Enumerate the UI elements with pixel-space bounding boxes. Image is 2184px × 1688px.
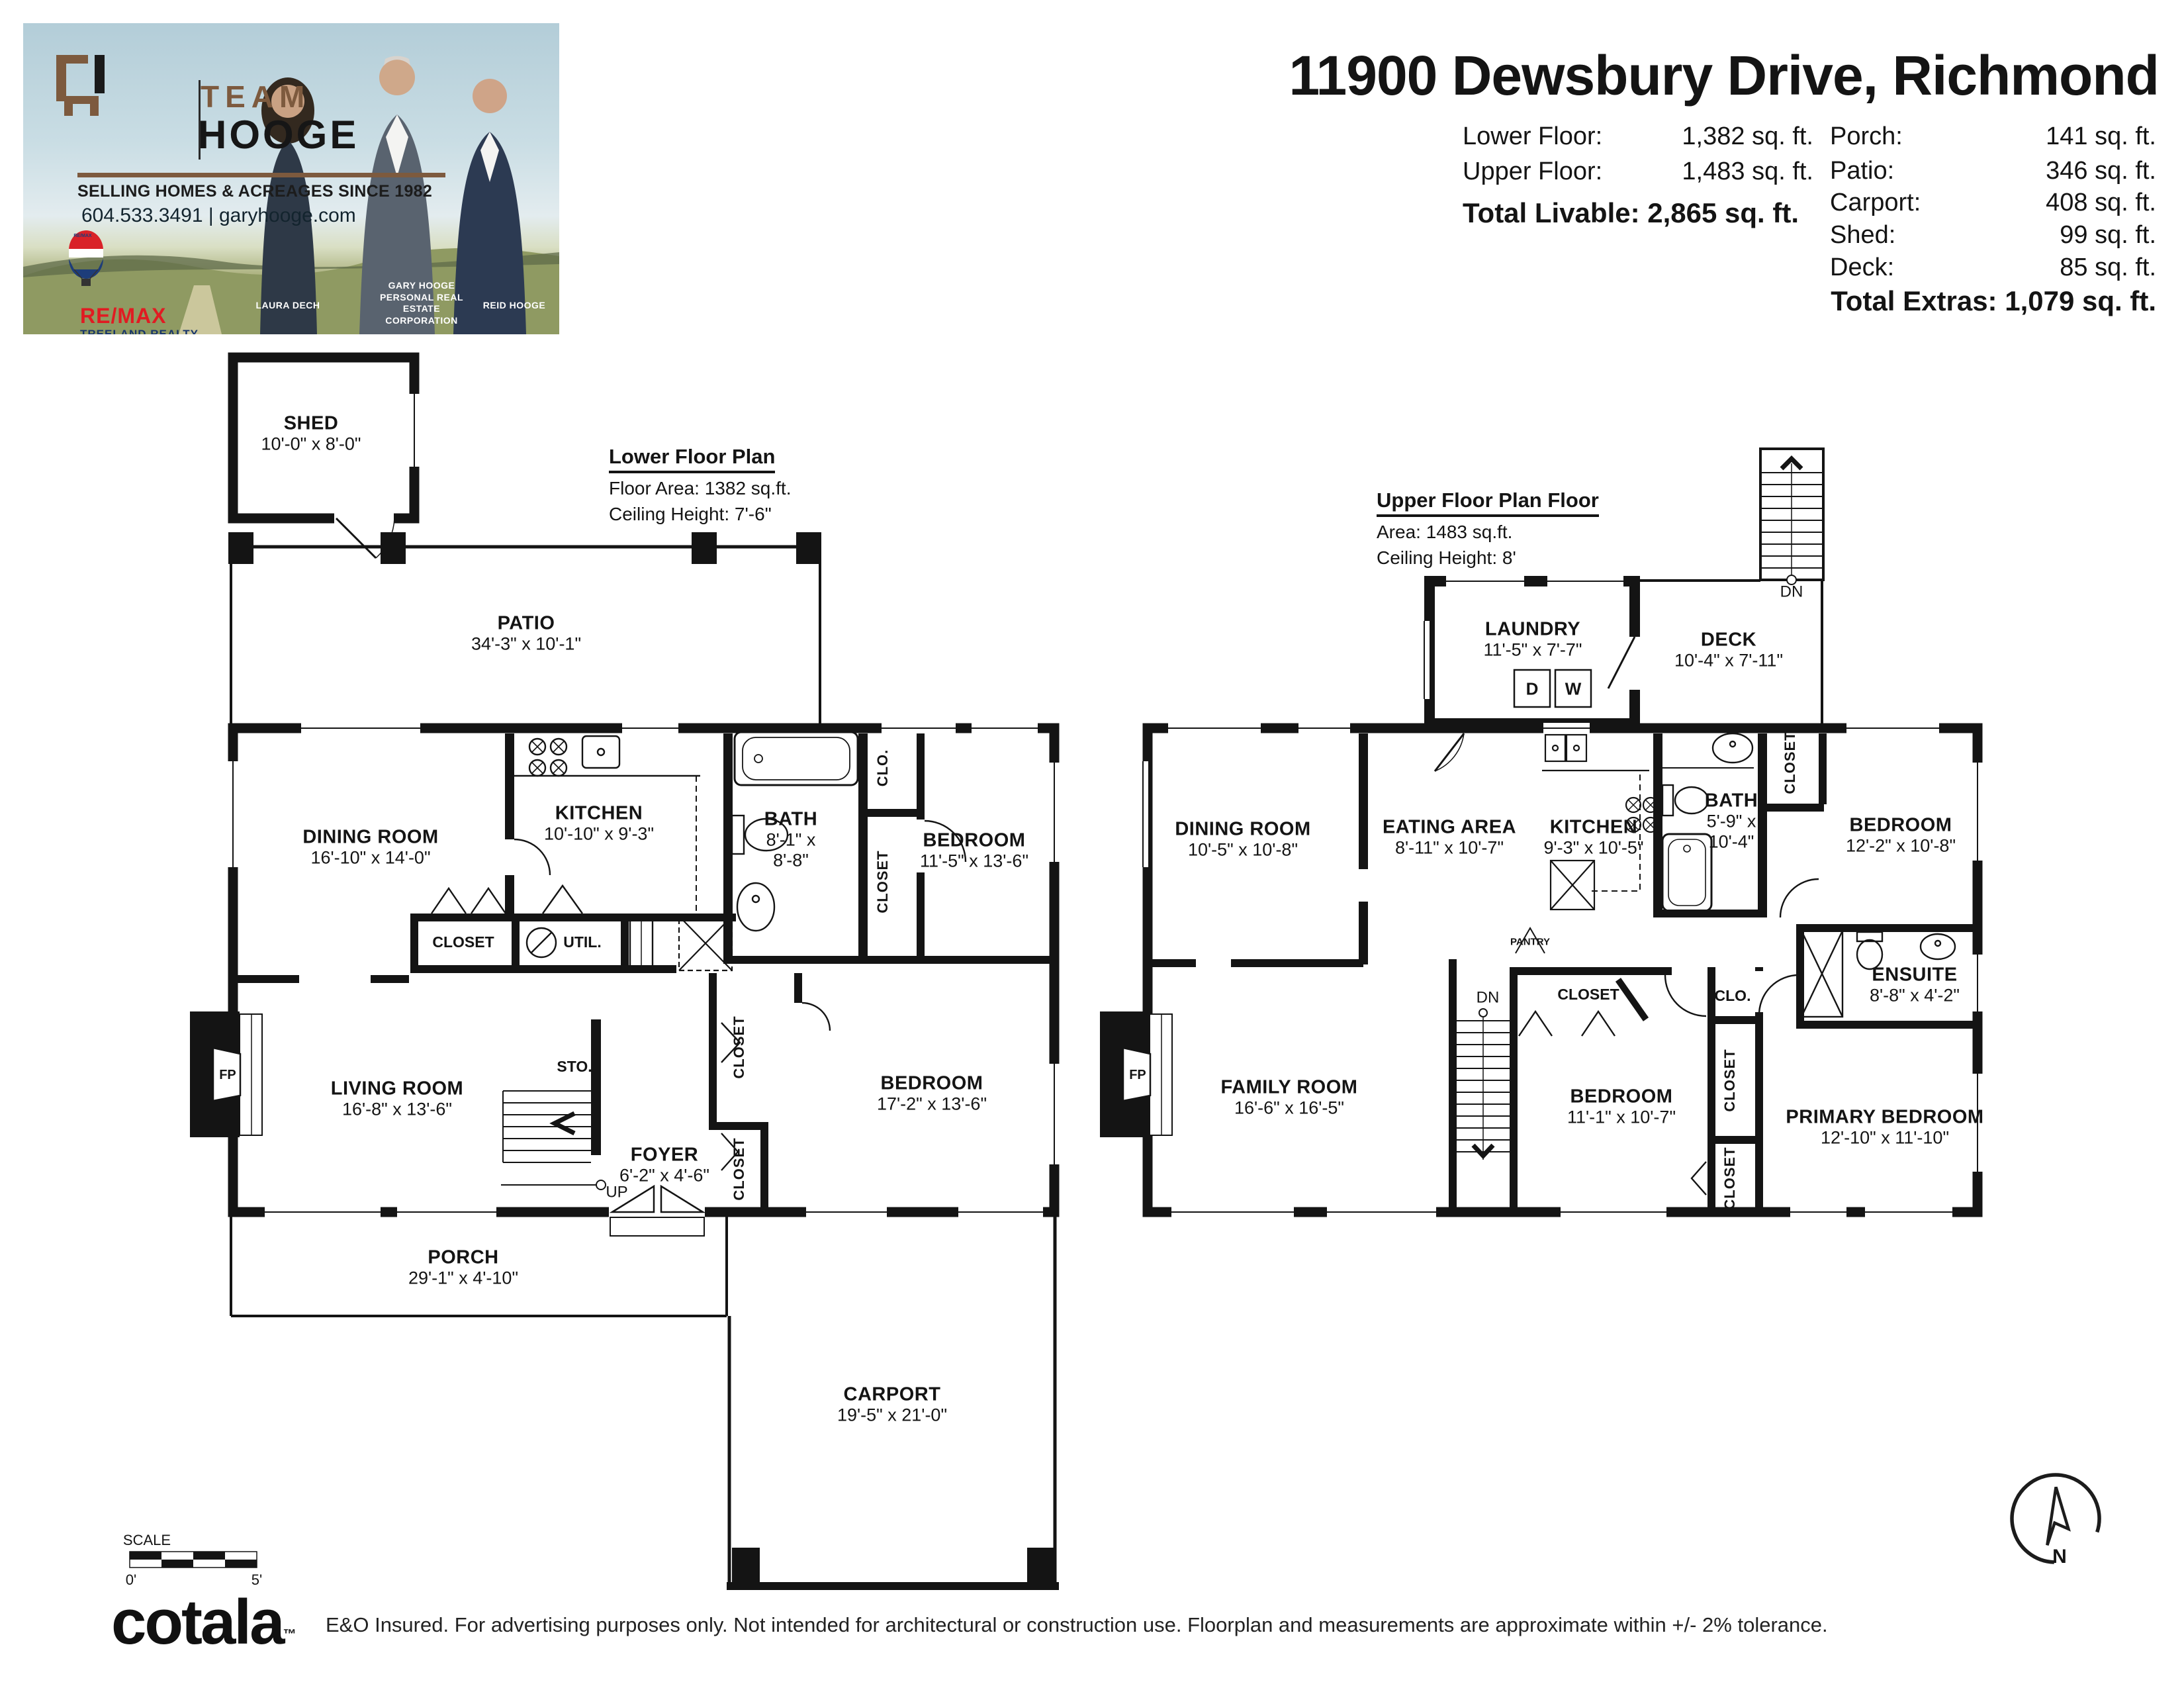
room-label-laundry: LAUNDRY11'-5" x 7'-7" [1483,619,1582,661]
team-hooge-logo [56,55,201,160]
room-label-porch: PORCH29'-1" x 4'-10" [408,1247,518,1289]
upper-floor-heading: Upper Floor Plan Floor Area: 1483 sq.ft.… [1377,489,1599,569]
label-dryer: D [1526,679,1539,698]
room-label-shed: SHED10'-0" x 8'-0" [261,413,361,455]
stat-total-extras: Total Extras: 1,079 sq. ft. [1787,285,2156,317]
stairs-upper-interior [1457,1009,1510,1160]
room-label-closet-bottom-upper: CLOSET [1721,1147,1739,1209]
room-label-eating-area: EATING AREA8'-11" x 10'-7" [1383,817,1516,859]
room-label-util: UTIL. [563,934,602,951]
cotala-tm: ™ [283,1627,296,1642]
bath-sink-icon [737,883,774,931]
room-label-closet-bed2: CLOSET [1557,986,1619,1004]
room-label-closet-foyer-bottom: CLOSET [731,1137,748,1200]
label-fp-upper: FP [1129,1068,1146,1082]
room-label-ensuite: ENSUITE8'-8" x 4'-2" [1870,964,1960,1006]
room-label-living: LIVING ROOM16'-8" x 13'-6" [331,1078,463,1120]
room-label-family-room: FAMILY ROOM16'-6" x 16'-5" [1221,1077,1358,1119]
room-label-patio: PATIO34'-3" x 10'-1" [471,613,581,655]
room-label-closet-bed-lower: CLOSET [874,850,891,913]
scale-bar [130,1552,257,1568]
brand-team: TEAM [201,79,310,115]
room-label-closet-mid-lower: CLOSET [432,934,494,951]
scale-label: SCALE [123,1532,171,1549]
agent-name-reid: REID HOOGE [481,300,547,312]
brand-tagline: SELLING HOMES & ACREAGES SINCE 1982 [77,182,432,201]
brand-banner: TEAM HOOGE SELLING HOMES & ACREAGES SINC… [23,23,559,334]
remax-office: TREELAND REALTY [80,328,199,334]
room-label-bath-lower: BATH8'-1" x8'-8" [764,809,817,870]
room-label-kitchen-lower: KITCHEN10'-10" x 9'-3" [544,803,654,845]
double-sink-icon [1542,735,1649,771]
room-label-deck: DECK10'-4" x 7'-11" [1674,630,1783,671]
agent-name-gary: GARY HOOGE PERSONAL REAL ESTATE CORPORAT… [372,280,471,326]
stat-patio: Patio:346 sq. ft. [1830,157,2156,185]
brand-rule [77,173,445,177]
lower-floor-heading: Lower Floor Plan Floor Area: 1382 sq.ft.… [609,445,792,525]
room-label-bath-upper: BATH5'-9" x10'-4" [1705,790,1758,852]
compass-n-label: N [2052,1546,2067,1568]
room-label-foyer: FOYER6'-2" x 4'-6" [619,1145,709,1186]
label-dn-mid: DN [1477,990,1500,1008]
stat-upper-floor: Upper Floor:1,483 sq. ft. [1463,158,1813,186]
room-label-bedroom-bottom-lower: BEDROOM17'-2" x 13'-6" [877,1073,987,1115]
room-label-clo-upper: CLO. [1715,988,1751,1005]
room-label-closet-foyer-top: CLOSET [731,1015,748,1078]
brand-hooge: HOOGE [198,112,359,158]
room-label-bedroom-bottom-upper: BEDROOM11'-1" x 10'-7" [1567,1086,1676,1128]
room-label-pantry: PANTRY [1510,937,1550,949]
label-fp-lower: FP [219,1068,236,1082]
floorplan-flyer: TEAM HOOGE SELLING HOMES & ACREAGES SINC… [0,0,2184,1688]
remax-balloon-text: RE/MAX [63,234,103,238]
brand-contact[interactable]: 604.533.3491 | garyhooge.com [81,205,356,227]
label-washer: W [1565,679,1582,698]
shed-outline [233,357,420,558]
room-label-primary-bedroom: PRIMARY BEDROOM12'-10" x 11'-10" [1786,1107,1983,1149]
stat-total-livable: Total Livable: 2,865 sq. ft. [1463,197,1799,229]
label-dn-top: DN [1780,584,1803,602]
stairs-lower [501,1091,606,1190]
stat-deck: Deck:85 sq. ft. [1830,254,2156,282]
room-label-clo-lower: CLO. [874,749,891,787]
stat-shed: Shed:99 sq. ft. [1830,221,2156,250]
agent-name-laura: LAURA DECH [251,300,324,312]
kitchen-sink-icon [582,736,619,768]
tub-icon [735,732,858,785]
banner-art [23,23,559,334]
room-label-bedroom-top-lower: BEDROOM11'-5" x 13'-6" [920,830,1028,872]
fridge-upper-icon [1551,861,1594,910]
stat-porch: Porch:141 sq. ft. [1830,122,2156,151]
room-label-closet-bed-upper: CLOSET [1782,731,1799,794]
remax-wordmark: RE/MAX [80,304,166,328]
stove-icon [514,739,700,776]
room-label-kitchen-upper: KITCHEN9'-3" x 10'-5" [1543,817,1643,859]
cotala-logo: cotala™ [111,1586,296,1659]
stat-lower-floor: Lower Floor:1,382 sq. ft. [1463,122,1813,151]
room-label-carport: CARPORT19'-5" x 21'-0" [837,1384,947,1426]
room-label-closet-mid-upper: CLOSET [1721,1049,1739,1111]
label-up: UP [606,1184,627,1202]
room-label-bedroom-top-upper: BEDROOM12'-2" x 10'-8" [1846,815,1956,857]
footer-disclaimer: E&O Insured. For advertising purposes on… [326,1613,1828,1637]
room-label-sto: STO. [557,1058,592,1076]
room-label-dining-upper: DINING ROOM10'-5" x 10'-8" [1175,819,1310,861]
stat-carport: Carport:408 sq. ft. [1830,189,2156,217]
page-title: 11900 Dewsbury Drive, Richmond [1289,44,2159,108]
room-label-dining-lower: DINING ROOM16'-10" x 14'-0" [302,827,438,868]
